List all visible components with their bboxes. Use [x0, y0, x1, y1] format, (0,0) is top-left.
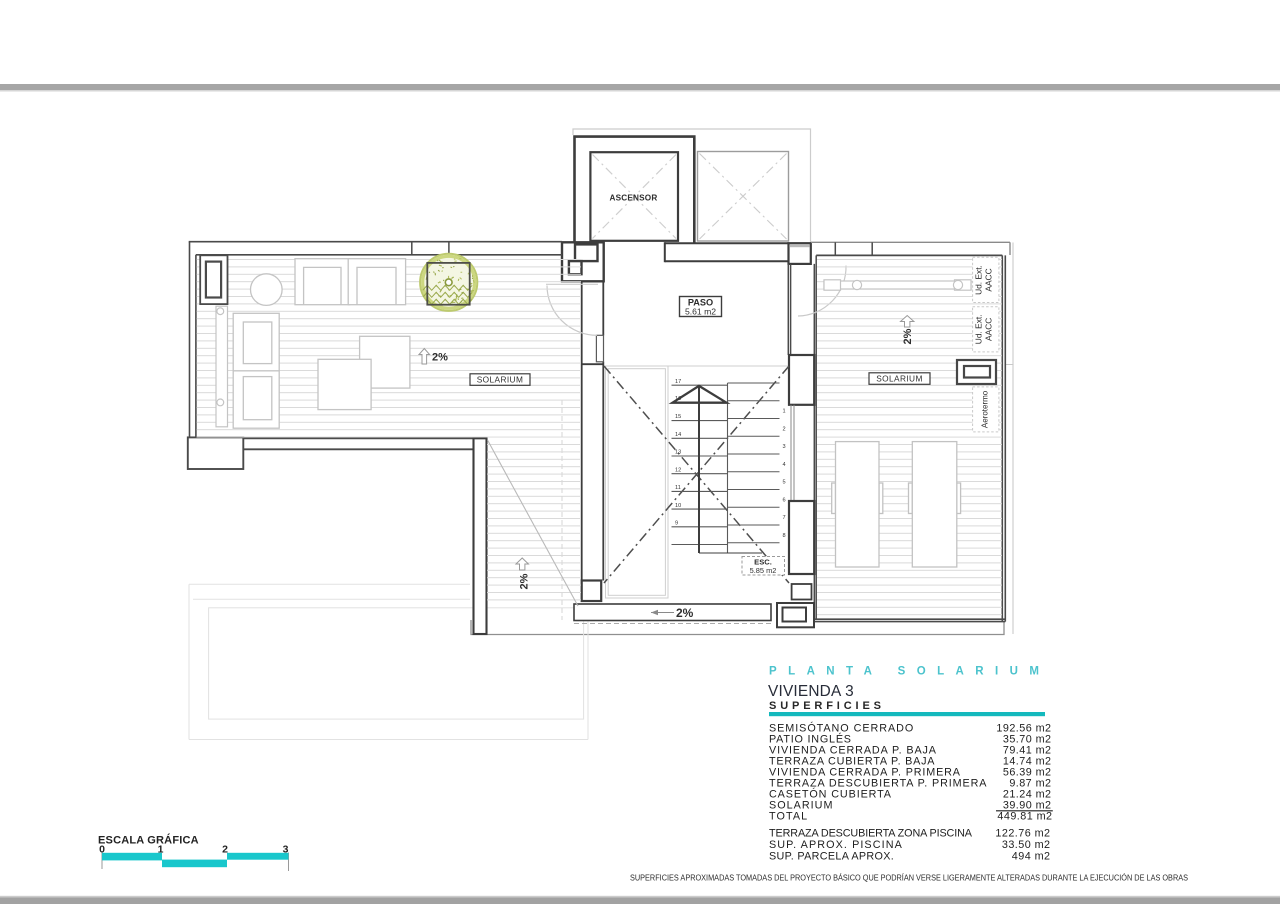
svg-text:17: 17 — [675, 379, 681, 385]
svg-text:6: 6 — [783, 497, 786, 503]
svg-text:SOLARIUM: SOLARIUM — [477, 375, 524, 385]
svg-text:33.50 m2: 33.50 m2 — [1002, 839, 1051, 851]
svg-text:SUP. PARCELA APROX.: SUP. PARCELA APROX. — [769, 850, 894, 862]
svg-text:9: 9 — [675, 521, 678, 527]
svg-text:TOTAL: TOTAL — [769, 811, 807, 823]
svg-text:ESCALA GRÁFICA: ESCALA GRÁFICA — [98, 834, 199, 847]
svg-text:VIVIENDA 3: VIVIENDA 3 — [768, 683, 854, 700]
svg-text:2%: 2% — [676, 606, 694, 620]
svg-text:TERRAZA DESCUBIERTA ZONA PISC: TERRAZA DESCUBIERTA ZONA PISCINA — [769, 828, 973, 840]
svg-text:5.61 m2: 5.61 m2 — [685, 307, 716, 317]
svg-text:449.81 m2: 449.81 m2 — [997, 811, 1052, 823]
svg-text:16: 16 — [675, 396, 681, 402]
svg-text:15: 15 — [675, 414, 681, 420]
svg-text:7: 7 — [783, 515, 786, 521]
svg-text:2%: 2% — [518, 573, 530, 589]
svg-text:2%: 2% — [902, 328, 914, 344]
svg-text:122.76 m2: 122.76 m2 — [995, 828, 1050, 840]
svg-text:AACC: AACC — [984, 318, 994, 341]
svg-text:2: 2 — [783, 426, 786, 432]
svg-text:Ud. Ext.: Ud. Ext. — [974, 265, 984, 295]
svg-text:5: 5 — [783, 480, 786, 486]
svg-text:1: 1 — [783, 409, 786, 415]
svg-text:CASETÓN CUBIERTA: CASETÓN CUBIERTA — [769, 788, 892, 801]
svg-text:14: 14 — [675, 432, 681, 438]
svg-text:ASCENSOR: ASCENSOR — [609, 194, 657, 203]
svg-text:Aerotermo: Aerotermo — [981, 390, 990, 428]
svg-text:11: 11 — [675, 485, 681, 491]
svg-text:494 m2: 494 m2 — [1012, 850, 1051, 862]
svg-text:3: 3 — [783, 444, 786, 450]
svg-text:Ud. Ext.: Ud. Ext. — [974, 314, 984, 344]
svg-text:2%: 2% — [432, 352, 448, 364]
svg-text:13: 13 — [675, 450, 681, 456]
svg-text:8: 8 — [783, 533, 786, 539]
svg-text:12: 12 — [675, 467, 681, 473]
svg-text:SUPERFICIES APROXIMADAS TOMADA: SUPERFICIES APROXIMADAS TOMADAS DEL PROY… — [630, 874, 1188, 883]
svg-text:AACC: AACC — [984, 268, 994, 291]
svg-text:SOLARIUM: SOLARIUM — [876, 374, 923, 384]
svg-text:SUP. APROX. PISCINA: SUP. APROX. PISCINA — [769, 839, 903, 851]
svg-text:4: 4 — [783, 462, 786, 468]
svg-text:5.85 m2: 5.85 m2 — [750, 566, 777, 575]
svg-text:10: 10 — [675, 503, 681, 509]
